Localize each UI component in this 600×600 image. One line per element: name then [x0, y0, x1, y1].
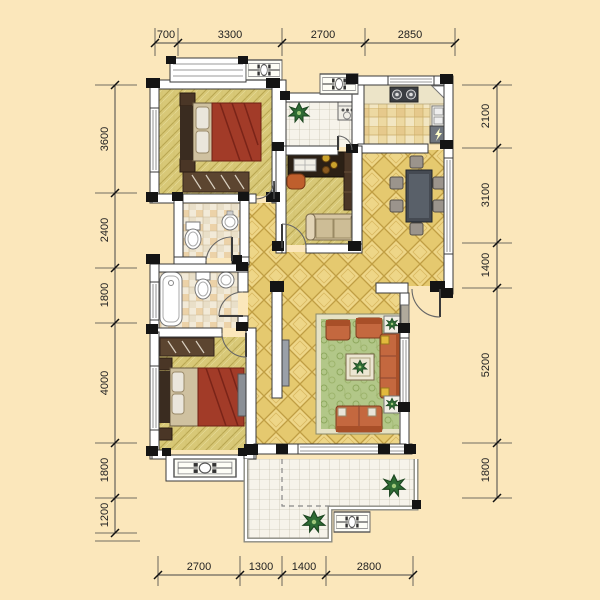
wall: [240, 194, 249, 264]
throw-pillow: [368, 408, 376, 416]
dining-chair: [410, 223, 423, 235]
dim-label: 3600: [99, 127, 111, 151]
dim-label: 2800: [357, 561, 381, 573]
wall: [174, 194, 183, 265]
planter-box-icon: [334, 512, 370, 532]
dim-label: 4000: [99, 371, 111, 395]
planter-box-icon: [174, 459, 236, 477]
washbasin: [218, 272, 234, 288]
floor-plan-drawing: 700 3300 2700 2850 3600 2400 1800 4000 1…: [0, 0, 600, 600]
window: [150, 366, 159, 430]
wall: [246, 328, 256, 459]
wardrobe: [160, 338, 214, 356]
dim-label: 1800: [480, 458, 492, 482]
tv-unit: [282, 340, 289, 386]
dim-label: 3300: [218, 29, 242, 41]
dim-label: 2100: [480, 104, 492, 128]
dim-label: 1400: [292, 561, 316, 573]
throw-pillow: [381, 388, 389, 396]
dining-table-top: [409, 174, 429, 218]
door-entry: [412, 289, 440, 317]
wall: [150, 328, 222, 337]
throw-pillow: [338, 408, 346, 416]
washbasin: [222, 214, 238, 230]
desk-chair: [287, 174, 305, 189]
throw-pillow: [381, 336, 389, 344]
window: [388, 76, 434, 85]
wall: [358, 144, 428, 153]
dim-label: 2700: [311, 29, 335, 41]
dim-label: 700: [157, 29, 175, 41]
window: [150, 108, 159, 172]
pillow: [196, 131, 209, 153]
dim-label: 3100: [480, 183, 492, 207]
dim-label: 1300: [249, 561, 273, 573]
window: [400, 338, 409, 406]
bedroom-1-furniture: [180, 93, 261, 192]
faucet: [227, 211, 233, 215]
pillow: [172, 394, 184, 414]
wall: [376, 283, 408, 293]
window: [150, 282, 159, 320]
tv-cabinet: [238, 374, 246, 416]
floor-plan-canvas: 700 3300 2700 2850 3600 2400 1800 4000 1…: [0, 0, 600, 600]
dimensions-right: 2100 3100 1400 5200 1800: [462, 81, 512, 502]
dim-label: 1800: [99, 458, 111, 482]
dim-label: 1400: [480, 253, 492, 277]
window: [444, 158, 453, 254]
wall: [272, 284, 282, 398]
pillow: [172, 372, 184, 392]
wall: [238, 272, 248, 292]
dining-chair: [390, 177, 403, 189]
dining-chair: [390, 200, 403, 212]
dimensions-left: 3600 2400 1800 4000 1800 1200: [95, 81, 137, 537]
bay-window: [170, 58, 246, 82]
dim-label: 2700: [187, 561, 211, 573]
dim-label: 2850: [398, 29, 422, 41]
nightstand: [158, 428, 172, 440]
planter-box-icon: [246, 60, 282, 80]
wall: [352, 146, 362, 253]
wall: [286, 146, 338, 155]
dimensions-bottom: 2700 1300 1400 2800: [95, 541, 417, 586]
dining-chair: [410, 156, 423, 168]
pillow: [196, 107, 209, 129]
dim-label: 5200: [480, 353, 492, 377]
bed-headboard: [158, 371, 170, 423]
wall: [150, 264, 248, 272]
bed-headboard: [180, 106, 193, 160]
dim-label: 2400: [99, 218, 111, 242]
dim-label: 1800: [99, 283, 111, 307]
dimensions-top: 700 3300 2700 2850: [151, 28, 459, 56]
dim-label: 1200: [99, 503, 111, 527]
